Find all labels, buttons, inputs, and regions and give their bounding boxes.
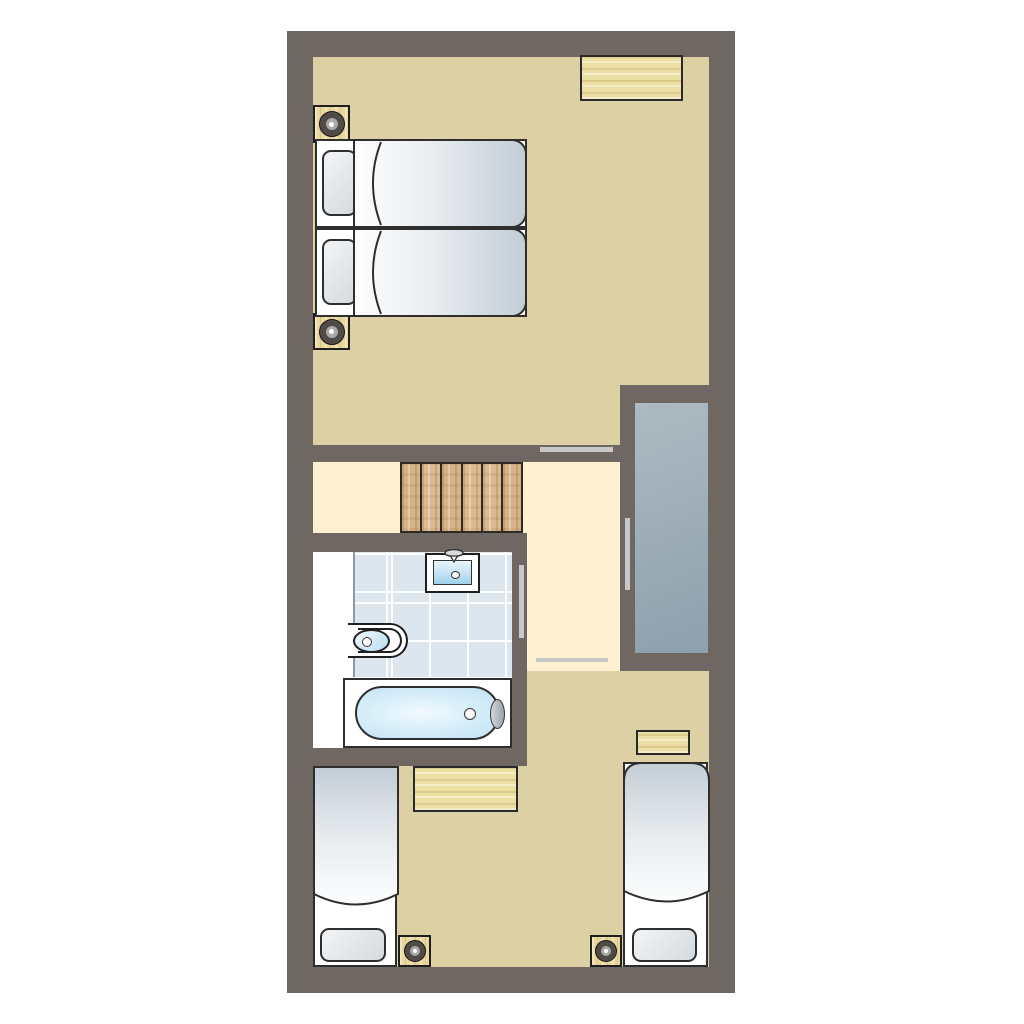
lamp-center <box>604 949 608 953</box>
floor-plan <box>287 31 735 993</box>
pillow <box>322 150 357 216</box>
stair-tread <box>481 462 503 533</box>
stair-tread <box>461 462 483 533</box>
door-opening-bedroom-top <box>540 447 613 452</box>
toilet-flush <box>362 637 372 647</box>
lamp-ring <box>601 946 611 956</box>
duvet <box>353 228 527 317</box>
stair-tread <box>420 462 442 533</box>
twin-bed-2 <box>315 228 527 317</box>
door-opening-bathroom <box>519 565 524 638</box>
lamp-center <box>329 329 334 334</box>
side-table <box>636 730 690 755</box>
twin-bed-1 <box>315 139 527 228</box>
floor-plan-canvas <box>0 0 1024 1024</box>
stair-tread <box>400 462 422 533</box>
lamp-icon <box>319 319 345 345</box>
bathtub-surround <box>343 678 512 748</box>
nightstand-bottom-2 <box>590 935 622 967</box>
stair-tread <box>501 462 523 533</box>
duvet <box>623 762 710 915</box>
duvet <box>313 766 399 918</box>
duvet <box>353 139 527 228</box>
lamp-center <box>413 949 417 953</box>
pillow <box>320 928 386 962</box>
lamp-ring <box>410 946 420 956</box>
bathroom <box>313 552 512 748</box>
door-opening-bedroom-bottom <box>536 658 608 662</box>
lamp-ring <box>326 326 338 338</box>
lamp-icon <box>404 940 426 962</box>
lamp-icon <box>595 940 617 962</box>
lamp-icon <box>319 111 345 137</box>
hallway-floor <box>527 462 620 684</box>
staircase <box>400 462 523 533</box>
nightstand-bottom-1 <box>398 935 431 967</box>
door-opening-void <box>625 518 630 590</box>
stair-tread <box>440 462 462 533</box>
nightstand-top-1 <box>313 105 350 143</box>
pillow <box>632 928 697 962</box>
nightstand-top-2 <box>313 313 350 350</box>
desk-top-bedroom <box>580 55 683 101</box>
pillow <box>322 239 357 305</box>
washbasin <box>425 553 480 593</box>
bathtub <box>355 686 500 740</box>
desk-bottom-bedroom <box>413 766 518 812</box>
lamp-ring <box>326 118 338 130</box>
duvet-fold-line <box>357 141 391 226</box>
toilet <box>348 623 408 658</box>
bathtub-faucet-icon <box>490 699 505 729</box>
bathtub-drain <box>464 708 476 720</box>
double-bed-top <box>315 139 527 317</box>
twin-bed-4 <box>623 762 708 967</box>
duvet-fold-line <box>357 230 391 315</box>
void-shaft <box>635 403 708 653</box>
lamp-center <box>329 122 334 127</box>
twin-bed-3 <box>313 766 397 967</box>
washbasin-drain <box>451 571 460 579</box>
